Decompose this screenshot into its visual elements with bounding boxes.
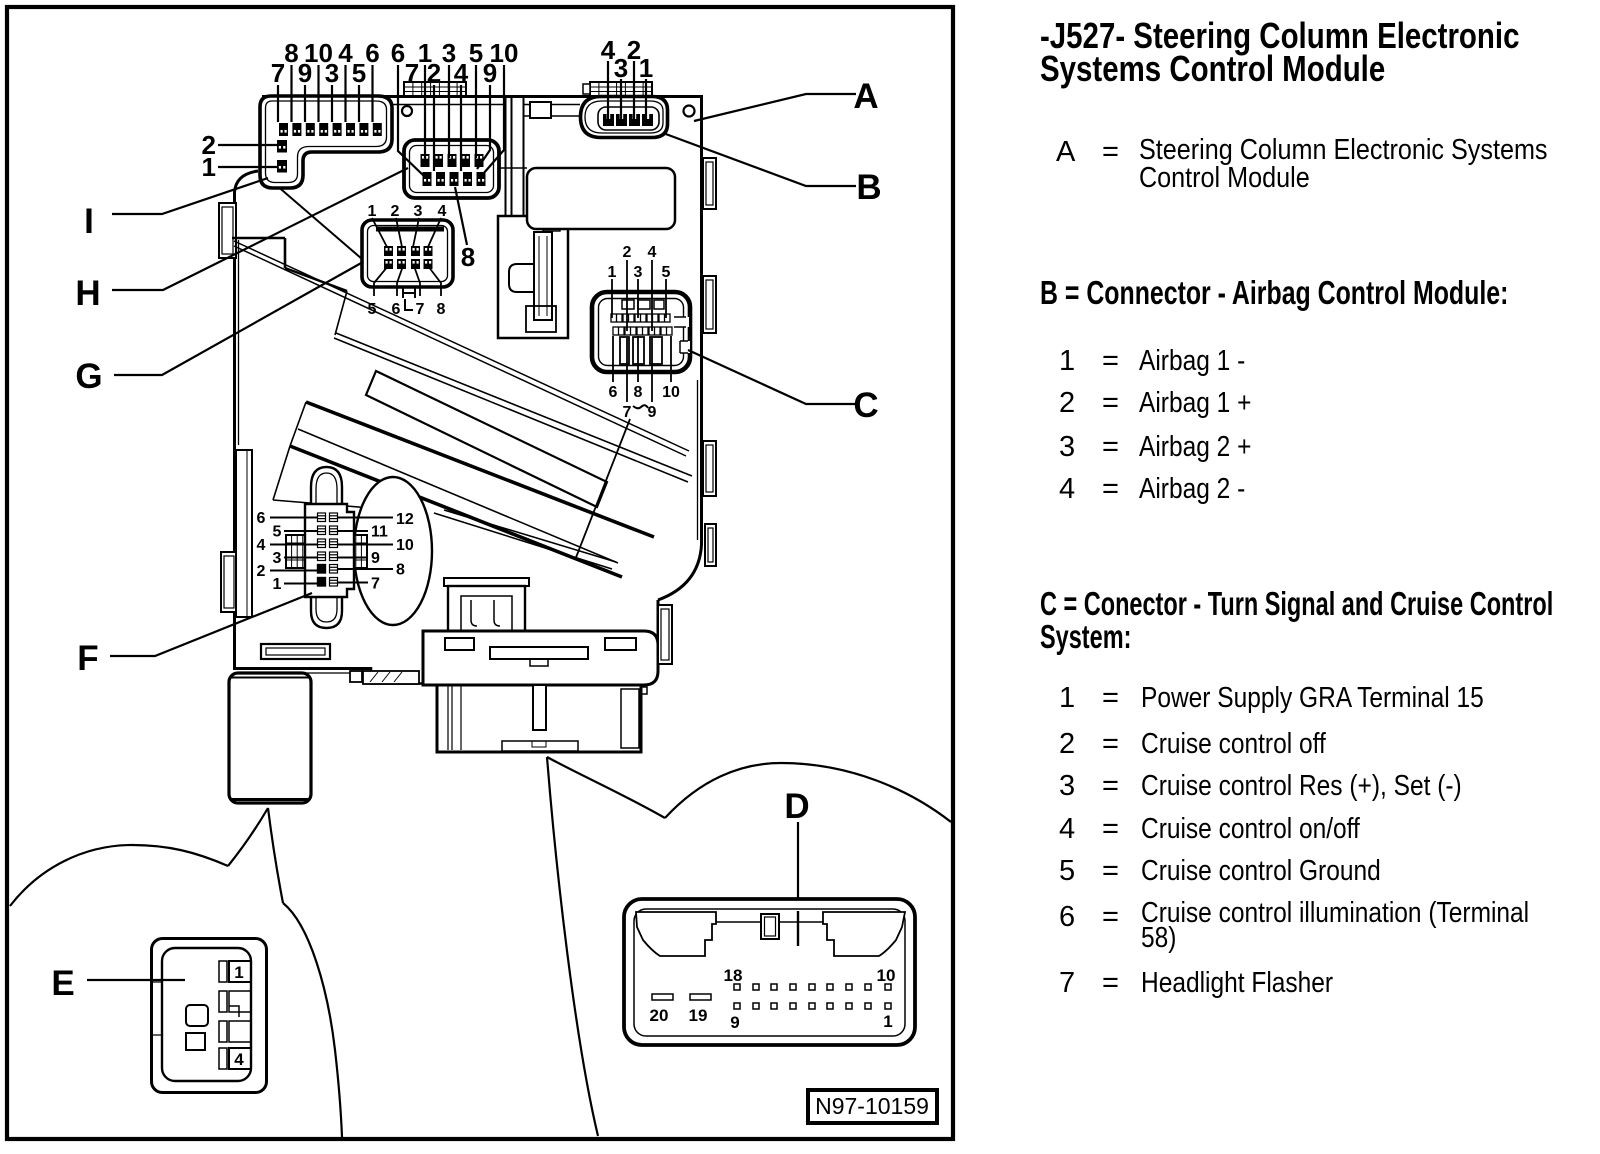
svg-text:10: 10 <box>396 537 414 554</box>
svg-text:1: 1 <box>883 1012 892 1031</box>
svg-text:B: B <box>856 168 881 207</box>
svg-text:I: I <box>84 202 94 241</box>
svg-text:3: 3 <box>325 58 339 88</box>
svg-text:1: 1 <box>273 576 282 593</box>
svg-text:8: 8 <box>634 384 643 401</box>
svg-text:3: 3 <box>614 53 628 83</box>
svg-text:8: 8 <box>461 242 475 272</box>
svg-text:5: 5 <box>368 301 377 318</box>
svg-text:6: 6 <box>392 301 401 318</box>
svg-text:4: 4 <box>454 58 469 88</box>
svg-text:4: 4 <box>648 244 657 261</box>
svg-text:F: F <box>77 639 98 678</box>
svg-text:C: C <box>853 386 878 425</box>
svg-text:2: 2 <box>391 203 400 220</box>
svg-text:1: 1 <box>639 53 653 83</box>
svg-text:10: 10 <box>877 966 896 985</box>
svg-text:1: 1 <box>234 963 243 982</box>
svg-text:H: H <box>75 274 100 313</box>
svg-text:9: 9 <box>483 58 497 88</box>
svg-text:9: 9 <box>648 404 657 421</box>
svg-text:9: 9 <box>371 550 380 567</box>
svg-text:19: 19 <box>689 1006 708 1025</box>
svg-text:5: 5 <box>469 38 483 68</box>
svg-text:2: 2 <box>623 244 632 261</box>
svg-text:6: 6 <box>257 510 266 527</box>
svg-text:18: 18 <box>724 966 743 985</box>
svg-text:1: 1 <box>368 203 377 220</box>
svg-text:7: 7 <box>271 58 285 88</box>
svg-text:3: 3 <box>273 550 282 567</box>
svg-text:4: 4 <box>438 203 447 220</box>
svg-text:N97-10159: N97-10159 <box>815 1093 929 1119</box>
svg-text:5: 5 <box>273 524 282 541</box>
svg-text:2: 2 <box>427 58 441 88</box>
svg-text:7: 7 <box>416 301 425 318</box>
svg-text:7: 7 <box>371 576 380 593</box>
svg-text:11: 11 <box>371 524 388 541</box>
svg-text:1: 1 <box>608 264 617 281</box>
svg-text:8: 8 <box>396 562 405 579</box>
svg-text:4: 4 <box>257 537 266 554</box>
svg-text:4: 4 <box>234 1050 244 1069</box>
svg-text:12: 12 <box>396 511 414 528</box>
svg-text:6: 6 <box>365 38 379 68</box>
svg-text:1: 1 <box>202 152 216 182</box>
svg-text:G: G <box>75 357 102 396</box>
svg-text:20: 20 <box>650 1006 669 1025</box>
svg-text:3: 3 <box>634 264 643 281</box>
svg-text:5: 5 <box>352 58 366 88</box>
svg-text:10: 10 <box>662 384 680 401</box>
svg-text:7: 7 <box>623 404 632 421</box>
svg-text:9: 9 <box>730 1013 739 1032</box>
svg-text:D: D <box>784 787 809 826</box>
svg-text:A: A <box>853 77 878 116</box>
svg-text:8: 8 <box>437 301 446 318</box>
svg-text:3: 3 <box>414 203 423 220</box>
svg-text:2: 2 <box>257 563 266 580</box>
svg-text:9: 9 <box>298 58 312 88</box>
svg-text:6: 6 <box>609 384 618 401</box>
svg-text:6: 6 <box>391 38 405 68</box>
svg-text:7: 7 <box>405 58 419 88</box>
svg-text:8: 8 <box>284 38 298 68</box>
svg-text:5: 5 <box>662 264 671 281</box>
svg-text:E: E <box>51 964 74 1003</box>
